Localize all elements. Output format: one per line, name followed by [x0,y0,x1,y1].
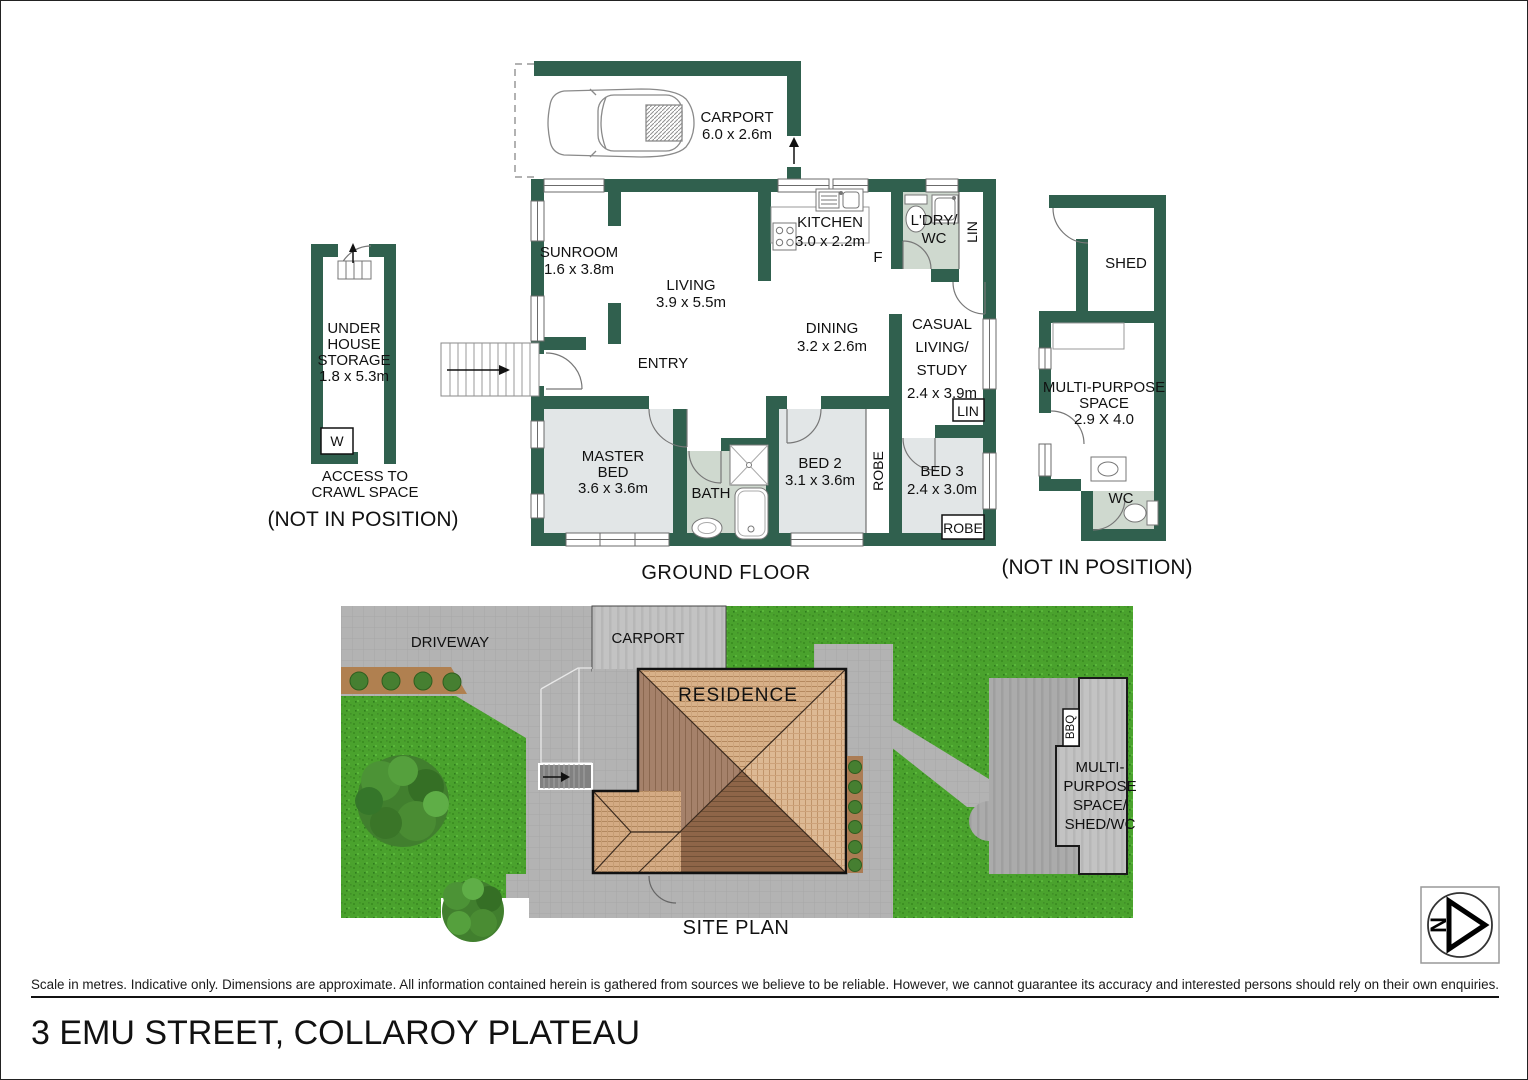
site-plan [341,606,1133,942]
label-laundry: L'DRY/WC [911,212,958,248]
label-bed3: BED 32.4 x 3.0m [907,463,977,499]
compass-north-label: N [1426,917,1451,933]
compass: N [1421,887,1499,963]
floorplan-page: N Scale in metres. Indicative only. Dime… [0,0,1528,1080]
basin-icon [692,518,722,538]
label-sunroom: SUNROOM1.6 x 3.8m [540,244,618,278]
label-fridge: F [873,249,882,266]
label-multipurpose: MULTI-PURPOSESPACE2.9 X 4.0 [1043,380,1165,428]
shrub-strip [847,756,863,873]
label-lin-box: LIN [957,403,979,420]
label-shed: SHED [1105,255,1147,272]
label-site-carport: CARPORT [611,630,684,647]
site-carport-column [592,669,638,791]
label-bed2: BED 23.1 x 3.6m [785,455,855,489]
label-robe-box: ROBE [943,520,983,537]
garden-strip [341,667,467,694]
label-under-house-storage: UNDERHOUSE STORAGE1.8 x 5.3m [317,321,390,385]
label-robe-strip: ROBE [870,451,886,491]
label-ground-floor-title: GROUND FLOOR [641,565,810,582]
disclaimer-text: Scale in metres. Indicative only. Dimens… [31,977,1499,992]
label-bath: BATH [692,485,731,502]
label-site-residence: RESIDENCE [678,687,798,704]
mp-sink-icon [1091,457,1126,481]
site-stairs-icon [539,764,592,789]
tree-icon-small [442,878,504,942]
label-living: LIVING3.9 x 5.5m [656,277,726,311]
property-address: 3 EMU STREET, COLLAROY PLATEAU [31,1014,640,1053]
shower-icon [730,445,768,485]
label-lin-laundry: LIN [964,221,980,243]
car-icon [548,89,694,157]
mp-counter [1053,323,1124,349]
label-site-plan-title: SITE PLAN [683,920,790,937]
label-site-driveway: DRIVEWAY [411,634,489,651]
label-dining: DINING3.2 x 2.6m [797,320,867,356]
label-entry: ENTRY [638,355,689,372]
bathtub-icon [735,488,768,539]
storage-hatch-icon [338,243,371,279]
label-kitchen: KITCHEN3.0 x 2.2m [795,213,865,251]
kitchen-sink-icon [816,189,863,211]
label-not-in-position-left: (NOT IN POSITION) [268,511,459,528]
entry-stairs-icon [441,343,539,396]
cooktop-icon [773,223,796,250]
label-casual-living: CASUALLIVING/ STUDY2.4 x 3.9m [907,313,977,405]
label-master-bed: MASTERBED3.6 x 3.6m [578,449,648,497]
label-washer: W [330,433,343,450]
label-site-multipurpose: MULTI-PURPOSE SPACE/SHED/WC [1063,758,1136,834]
label-wc: WC [1109,490,1134,507]
label-not-in-position-right: (NOT IN POSITION) [1002,559,1193,576]
label-carport: CARPORT6.0 x 2.6m [700,109,773,143]
label-site-bbq: BBQ [1065,715,1077,739]
label-crawl-access: ACCESS TOCRAWL SPACE [312,469,419,501]
